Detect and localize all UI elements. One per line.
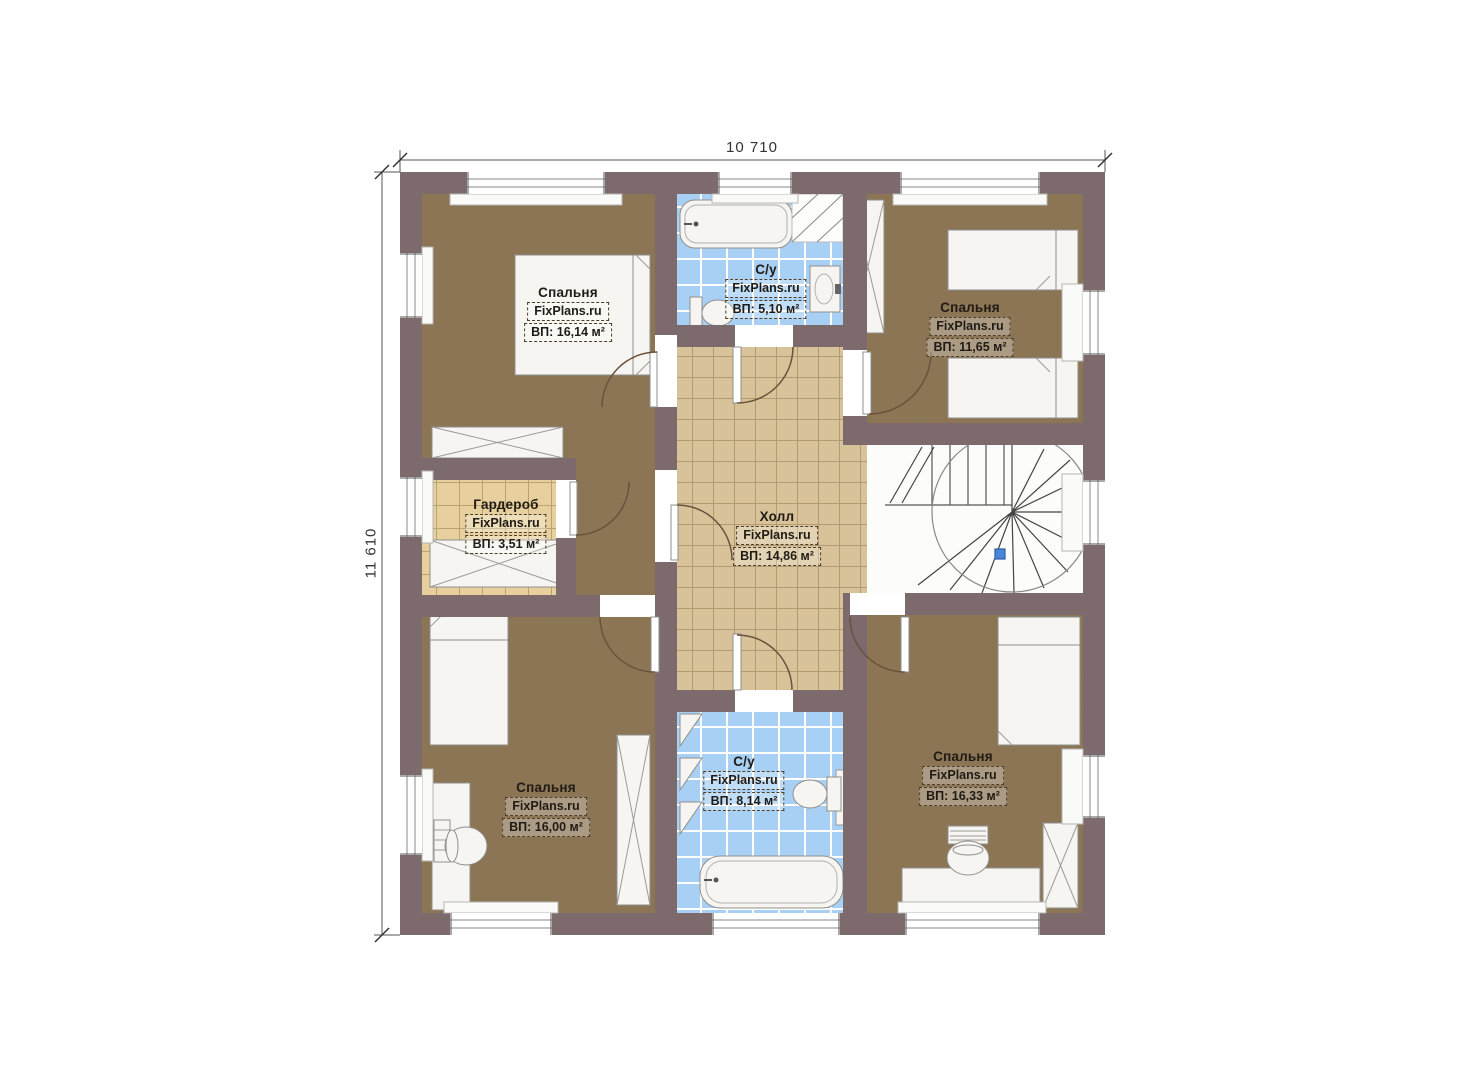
wardrobe-cabinet	[432, 427, 563, 458]
watermark-box: FixPlans.ru	[736, 526, 817, 545]
bed-single	[948, 358, 1078, 418]
window	[400, 775, 422, 855]
door-leaf	[671, 505, 678, 560]
area-box: ВП: 11,65 м²	[926, 338, 1013, 357]
door-leaf	[651, 617, 659, 672]
office-chair	[445, 827, 487, 865]
room-name: С/у	[755, 262, 777, 277]
window	[718, 172, 792, 194]
door-leaf	[570, 482, 577, 535]
door-leaf	[863, 352, 871, 414]
room-name: Холл	[760, 509, 795, 524]
door-leaf	[901, 617, 909, 672]
room-name: Спальня	[933, 749, 993, 764]
room-label-bathroom-bottom: С/у FixPlans.ru ВП: 8,14 м²	[703, 754, 784, 811]
sink-vanity	[810, 266, 841, 312]
wardrobe-cabinet	[617, 735, 650, 905]
window	[1083, 755, 1105, 818]
area-box: ВП: 16,14 м²	[524, 323, 612, 342]
watermark-box: FixPlans.ru	[922, 766, 1003, 785]
floor-plan-canvas: 10 710 11 610 Спальня FixPlans.ru ВП: 16…	[0, 0, 1474, 1080]
dimension-width-label: 10 710	[726, 139, 778, 156]
watermark-box: FixPlans.ru	[465, 514, 546, 533]
watermark-box: FixPlans.ru	[703, 771, 784, 790]
window	[1083, 290, 1105, 355]
door-leaf	[733, 347, 741, 403]
window	[1083, 480, 1105, 545]
window	[905, 913, 1040, 935]
hatched-niche	[792, 194, 843, 242]
door-leaf	[733, 634, 741, 690]
room-name: Спальня	[538, 285, 598, 300]
window	[712, 913, 840, 935]
room-label-bedroom-bottom-left: Спальня FixPlans.ru ВП: 16,00 м²	[502, 780, 590, 837]
room-name: С/у	[733, 754, 755, 769]
room-label-bedroom-bottom-right: Спальня FixPlans.ru ВП: 16,33 м²	[919, 749, 1007, 806]
room-name: Гардероб	[473, 497, 538, 512]
area-box: ВП: 16,00 м²	[502, 818, 590, 837]
area-box: ВП: 3,51 м²	[466, 535, 547, 554]
room-label-hall: Холл FixPlans.ru ВП: 14,86 м²	[733, 509, 821, 566]
room-name: Спальня	[940, 300, 1000, 315]
area-box: ВП: 8,14 м²	[704, 792, 785, 811]
floor-stairs	[867, 445, 1083, 593]
room-label-wardrobe: Гардероб FixPlans.ru ВП: 3,51 м²	[465, 497, 546, 554]
watermark-box: FixPlans.ru	[505, 797, 586, 816]
room-label-bedroom-top-right: Спальня FixPlans.ru ВП: 11,65 м²	[926, 300, 1013, 357]
bed-single	[998, 617, 1080, 745]
area-box: ВП: 14,86 м²	[733, 547, 821, 566]
window	[467, 172, 605, 194]
watermark-box: FixPlans.ru	[725, 279, 806, 298]
window	[400, 477, 422, 537]
bed-single	[948, 230, 1078, 290]
dimension-height-label: 11 610	[363, 528, 380, 579]
window	[400, 253, 422, 318]
door-leaf	[650, 352, 657, 407]
area-box: ВП: 16,33 м²	[919, 787, 1007, 806]
area-box: ВП: 5,10 м²	[726, 300, 807, 319]
room-label-bedroom-top-left: Спальня FixPlans.ru ВП: 16,14 м²	[524, 285, 612, 342]
floor-texture	[575, 458, 655, 595]
watermark-box: FixPlans.ru	[929, 317, 1010, 336]
bed-single	[430, 613, 508, 745]
office-chair	[947, 841, 989, 875]
wardrobe-cabinet	[1043, 823, 1078, 908]
watermark-box: FixPlans.ru	[527, 302, 608, 321]
window	[900, 172, 1040, 194]
stair-marker	[995, 549, 1005, 559]
bathtub	[680, 200, 792, 248]
room-name: Спальня	[516, 780, 576, 795]
bathtub	[700, 856, 843, 908]
room-label-bathroom-top: С/у FixPlans.ru ВП: 5,10 м²	[725, 262, 806, 319]
window	[450, 913, 552, 935]
